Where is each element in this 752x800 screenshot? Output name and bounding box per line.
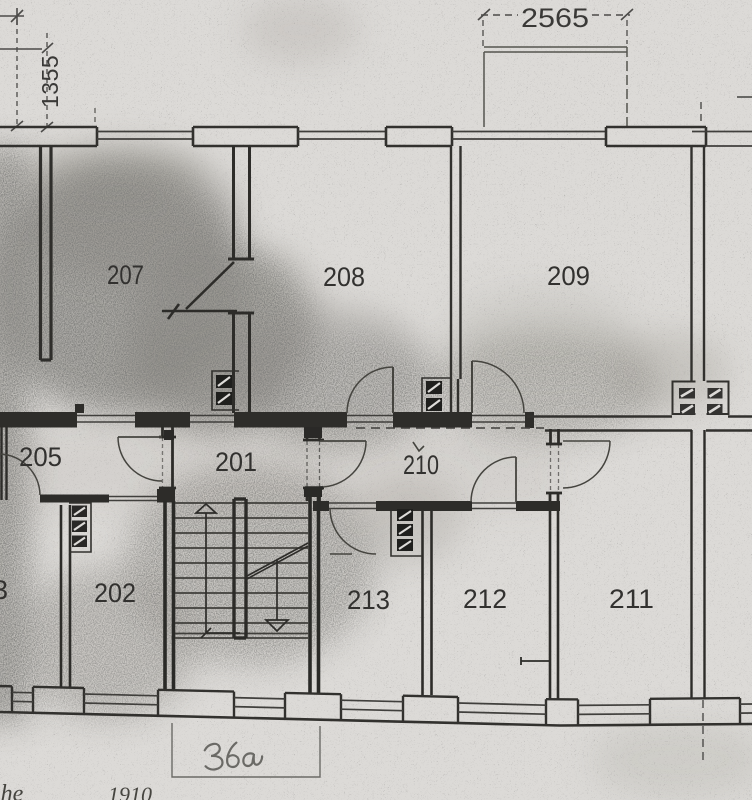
svg-text:2565: 2565 [521, 3, 589, 33]
svg-text:208: 208 [323, 262, 365, 292]
svg-text:3: 3 [0, 575, 8, 605]
svg-text:211: 211 [609, 584, 654, 614]
svg-text:213: 213 [347, 585, 390, 615]
svg-text:212: 212 [463, 584, 507, 614]
svg-text:201: 201 [215, 447, 257, 477]
svg-text:1355: 1355 [37, 55, 63, 108]
svg-text:202: 202 [94, 578, 136, 608]
svg-text:209: 209 [547, 261, 590, 291]
svg-text:210: 210 [403, 450, 439, 480]
svg-text:1910: 1910 [108, 782, 152, 800]
svg-text:205: 205 [19, 442, 62, 472]
svg-text:ihe: ihe [0, 781, 24, 800]
svg-text:207: 207 [107, 260, 144, 290]
